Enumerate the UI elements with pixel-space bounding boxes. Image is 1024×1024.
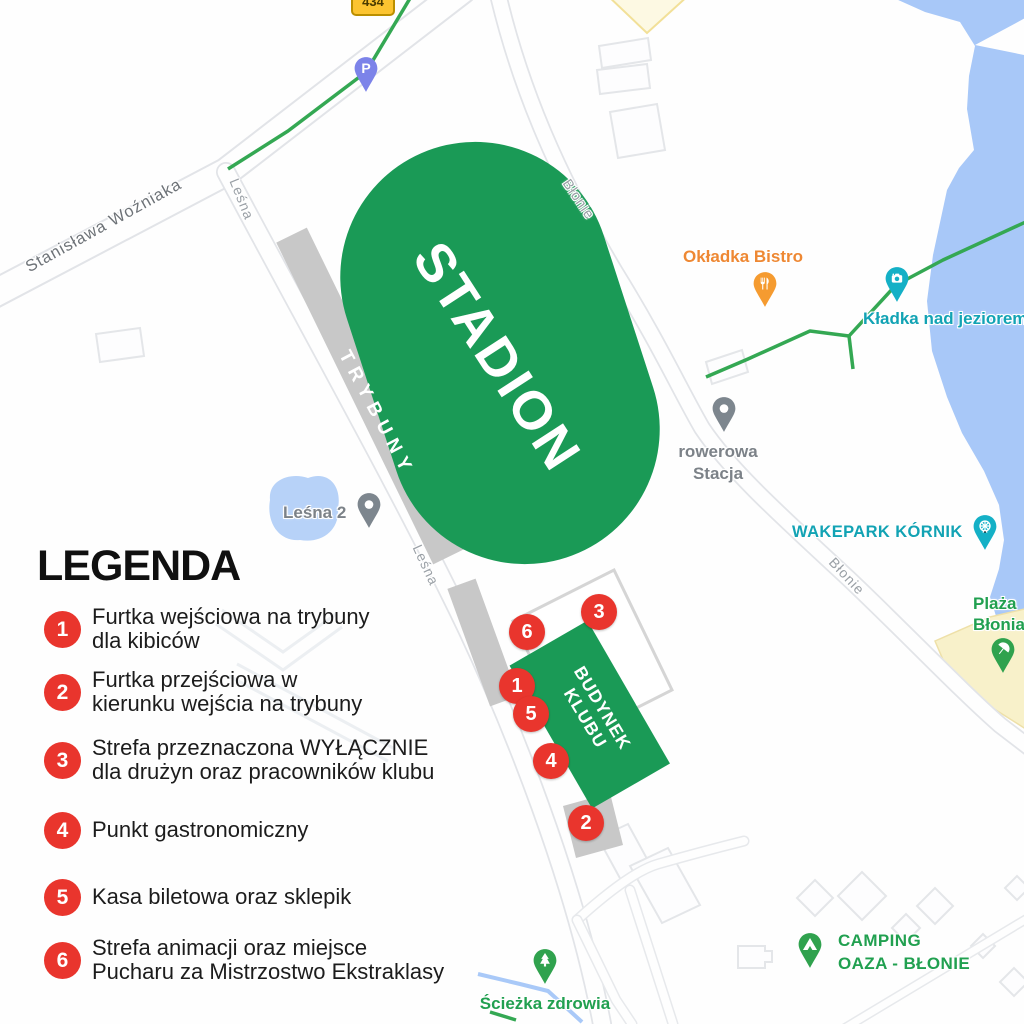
wakepark-label[interactable]: WAKEPARK KÓRNIK bbox=[792, 522, 963, 543]
bike-station-line1: rowerowa bbox=[648, 441, 788, 463]
map-marker-6[interactable]: 6 bbox=[509, 614, 545, 650]
legend-item-5-line1: Kasa biletowa oraz sklepik bbox=[92, 885, 351, 909]
ferris-wheel-icon bbox=[972, 514, 998, 551]
camera-icon bbox=[884, 266, 910, 303]
camping-pin[interactable] bbox=[797, 932, 823, 969]
legend-badge-4: 4 bbox=[44, 812, 81, 849]
beach-label[interactable]: Plaża Błonia bbox=[973, 593, 1024, 635]
bike-station-pin[interactable] bbox=[711, 396, 737, 433]
legend-badge-1: 1 bbox=[44, 611, 81, 648]
bike-station-label[interactable]: rowerowa Stacja bbox=[648, 441, 788, 485]
health-path-pin[interactable] bbox=[532, 948, 558, 985]
fork-knife-icon bbox=[752, 271, 778, 308]
beach-umbrella-icon bbox=[990, 637, 1016, 674]
legend-item-6-line1: Strefa animacji oraz miejsce bbox=[92, 936, 444, 960]
gray-dot-pin-icon bbox=[356, 492, 382, 529]
tent-icon bbox=[797, 932, 823, 969]
bridge-label[interactable]: Kładka nad jeziorem bbox=[863, 308, 1024, 329]
bistro-label[interactable]: Okładka Bistro bbox=[683, 246, 803, 267]
lesna2-label[interactable]: Leśna 2 bbox=[283, 502, 346, 523]
legend-item-4-line1: Punkt gastronomiczny bbox=[92, 818, 308, 842]
legend-item-6-line2: Pucharu za Mistrzostwo Ekstraklasy bbox=[92, 960, 444, 984]
restaurant-pin[interactable] bbox=[752, 271, 778, 308]
stadium-map-infographic: { "colors": { "stadium_green": "#1a9a56"… bbox=[0, 0, 1024, 1024]
legend-item-3-line1: Strefa przeznaczona WYŁĄCZNIE bbox=[92, 736, 434, 760]
legend-item-3-line2: dla drużyn oraz pracowników klubu bbox=[92, 760, 434, 784]
map-marker-2[interactable]: 2 bbox=[568, 805, 604, 841]
wakepark-pin[interactable] bbox=[972, 514, 998, 551]
photo-spot-pin[interactable] bbox=[884, 266, 910, 303]
bike-station-line2: Stacja bbox=[648, 463, 788, 485]
lesna2-pin[interactable] bbox=[356, 492, 382, 529]
camping-label[interactable]: CAMPING OAZA - BŁONIE bbox=[838, 929, 970, 975]
parking-letter: P bbox=[353, 60, 379, 76]
legend-badge-2: 2 bbox=[44, 674, 81, 711]
legend-item-1-line2: dla kibiców bbox=[92, 629, 370, 653]
legend-badge-3: 3 bbox=[44, 742, 81, 779]
health-path-label[interactable]: Ścieżka zdrowia bbox=[455, 993, 635, 1014]
legend-title: LEGENDA bbox=[37, 542, 240, 591]
parking-pin[interactable]: P bbox=[353, 56, 379, 93]
gray-dot-pin-icon bbox=[711, 396, 737, 433]
map-marker-5[interactable]: 5 bbox=[513, 696, 549, 732]
map-marker-4[interactable]: 4 bbox=[533, 743, 569, 779]
camping-line1: CAMPING bbox=[838, 929, 970, 952]
map-marker-3[interactable]: 3 bbox=[581, 594, 617, 630]
beach-pin[interactable] bbox=[990, 637, 1016, 674]
legend-item-2-line2: kierunku wejścia na trybuny bbox=[92, 692, 362, 716]
legend-item-1-line1: Furtka wejściowa na trybuny bbox=[92, 605, 370, 629]
legend-item-2-line1: Furtka przejściowa w bbox=[92, 668, 362, 692]
legend-badge-5: 5 bbox=[44, 879, 81, 916]
sand-diamond-outline bbox=[606, 0, 690, 33]
camping-line2: OAZA - BŁONIE bbox=[838, 952, 970, 975]
beach-line1: Plaża bbox=[973, 593, 1024, 614]
route-badge-434: 434 bbox=[351, 0, 395, 16]
legend-badge-6: 6 bbox=[44, 942, 81, 979]
map-canvas bbox=[0, 0, 1024, 1024]
beach-line2: Błonia bbox=[973, 614, 1024, 635]
tree-icon bbox=[532, 948, 558, 985]
